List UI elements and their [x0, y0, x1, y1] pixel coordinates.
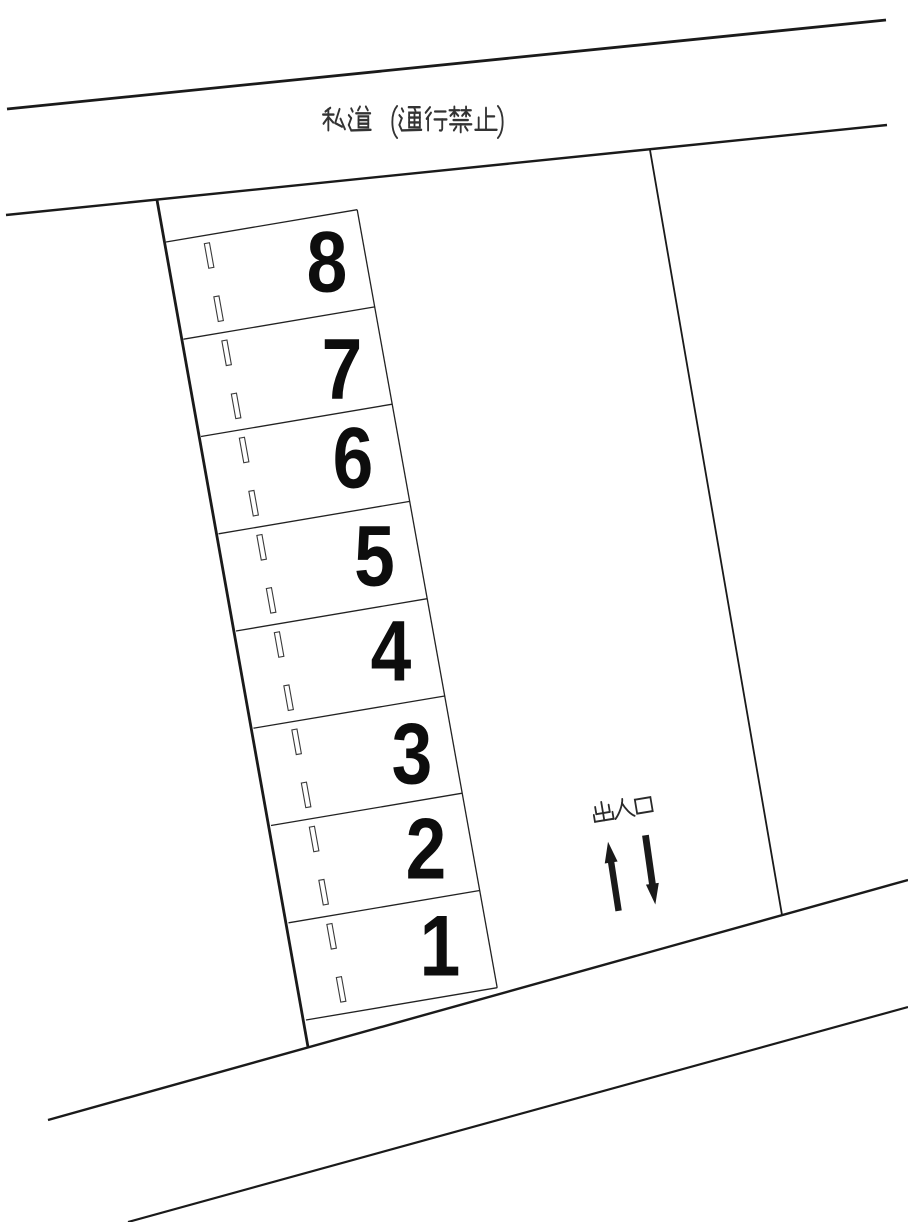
- svg-text:2: 2: [406, 801, 447, 897]
- svg-text:5: 5: [354, 508, 395, 604]
- svg-text:3: 3: [392, 706, 433, 802]
- svg-text:8: 8: [307, 214, 348, 310]
- svg-text:4: 4: [371, 603, 412, 699]
- svg-text:6: 6: [333, 410, 374, 506]
- svg-text:1: 1: [420, 898, 461, 994]
- svg-text:7: 7: [322, 321, 363, 417]
